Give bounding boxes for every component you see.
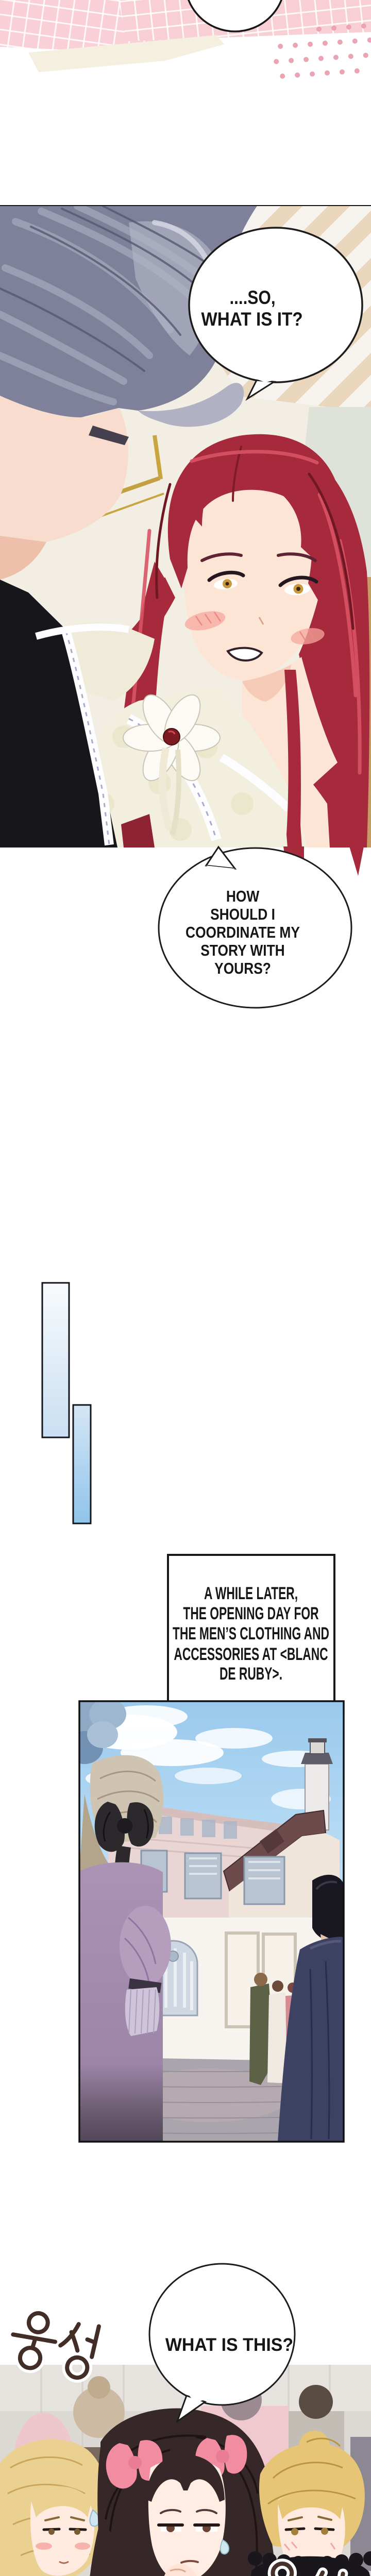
svg-text:COORDINATE MY: COORDINATE MY — [185, 924, 300, 941]
svg-text:DE RUBY>.: DE RUBY>. — [220, 1665, 282, 1684]
svg-text:SHOULD I: SHOULD I — [210, 906, 275, 923]
svg-text:THE OPENING DAY FOR: THE OPENING DAY FOR — [183, 1604, 318, 1624]
svg-text:A WHILE LATER,: A WHILE LATER, — [204, 1584, 298, 1604]
svg-text:....SO,: ....SO, — [229, 287, 275, 309]
svg-text:ACCESSORIES AT <BLANC: ACCESSORIES AT <BLANC — [174, 1645, 328, 1665]
svg-text:WHAT IS THIS?: WHAT IS THIS? — [165, 2335, 293, 2355]
svg-text:YOURS?: YOURS? — [214, 960, 271, 977]
svg-text:HOW: HOW — [226, 888, 260, 905]
svg-text:THE MEN’S CLOTHING AND: THE MEN’S CLOTHING AND — [173, 1624, 329, 1644]
svg-text:WHAT IS IT?: WHAT IS IT? — [201, 309, 302, 330]
svg-text:STORY WITH: STORY WITH — [200, 942, 284, 959]
